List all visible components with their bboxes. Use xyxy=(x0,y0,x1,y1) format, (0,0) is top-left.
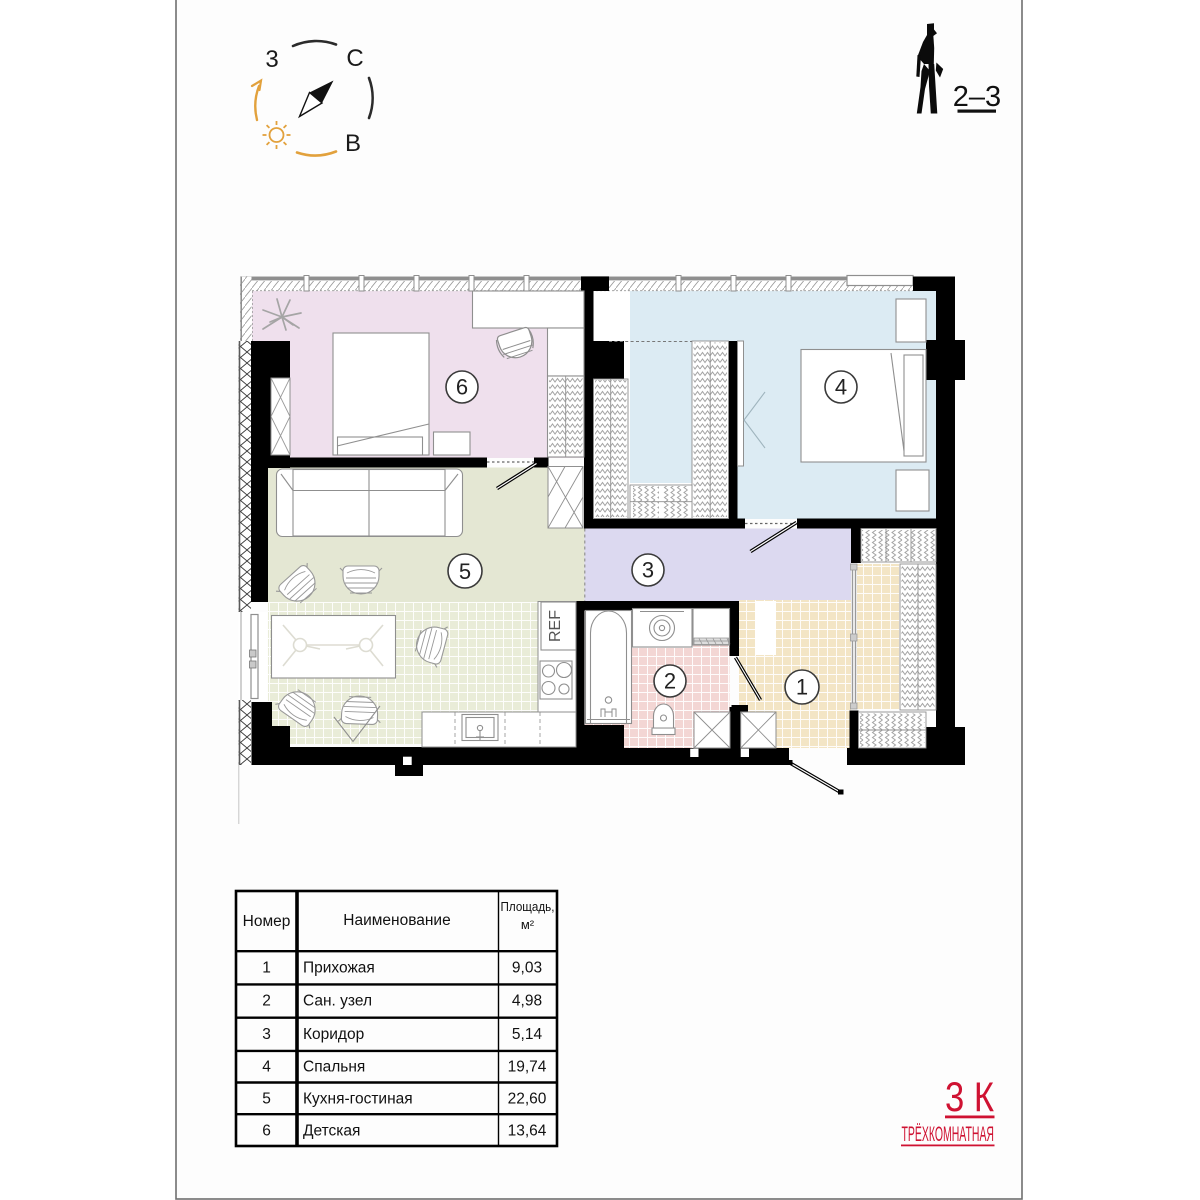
svg-text:Сан. узел: Сан. узел xyxy=(303,993,372,1010)
svg-text:2: 2 xyxy=(664,669,676,694)
svg-text:22,60: 22,60 xyxy=(508,1091,547,1108)
svg-text:REF: REF xyxy=(547,610,564,642)
svg-text:5: 5 xyxy=(459,559,471,584)
svg-text:5: 5 xyxy=(262,1091,271,1108)
svg-text:6: 6 xyxy=(456,375,468,400)
svg-text:5,14: 5,14 xyxy=(512,1026,543,1043)
svg-text:2–3: 2–3 xyxy=(953,81,1001,113)
svg-text:Коридор: Коридор xyxy=(303,1026,364,1043)
svg-text:Прихожая: Прихожая xyxy=(303,960,375,977)
svg-text:3: 3 xyxy=(265,46,278,73)
svg-text:19,74: 19,74 xyxy=(508,1059,547,1076)
svg-text:C: C xyxy=(346,45,363,72)
svg-text:Детская: Детская xyxy=(303,1122,360,1139)
svg-text:1: 1 xyxy=(796,675,808,700)
svg-text:4,98: 4,98 xyxy=(512,993,542,1010)
svg-text:ТРЁХКОМНАТНАЯ: ТРЁХКОМНАТНАЯ xyxy=(902,1123,995,1146)
svg-text:Номер: Номер xyxy=(243,913,291,930)
svg-text:3: 3 xyxy=(642,558,654,583)
svg-text:3 К: 3 К xyxy=(945,1073,994,1120)
svg-text:13,64: 13,64 xyxy=(508,1122,547,1139)
svg-text:9,03: 9,03 xyxy=(512,960,542,977)
svg-text:4: 4 xyxy=(835,375,847,400)
svg-text:3: 3 xyxy=(262,1026,271,1043)
svg-text:4: 4 xyxy=(262,1059,271,1076)
svg-text:Площадь,: Площадь, xyxy=(501,899,555,914)
svg-text:Наименование: Наименование xyxy=(343,912,450,929)
svg-text:6: 6 xyxy=(262,1122,271,1139)
svg-text:Кухня-гостиная: Кухня-гостиная xyxy=(303,1091,413,1108)
svg-text:1: 1 xyxy=(262,960,271,977)
svg-text:м²: м² xyxy=(521,917,535,932)
svg-text:2: 2 xyxy=(262,993,271,1010)
svg-text:B: B xyxy=(345,130,361,157)
svg-text:Спальня: Спальня xyxy=(303,1059,365,1076)
